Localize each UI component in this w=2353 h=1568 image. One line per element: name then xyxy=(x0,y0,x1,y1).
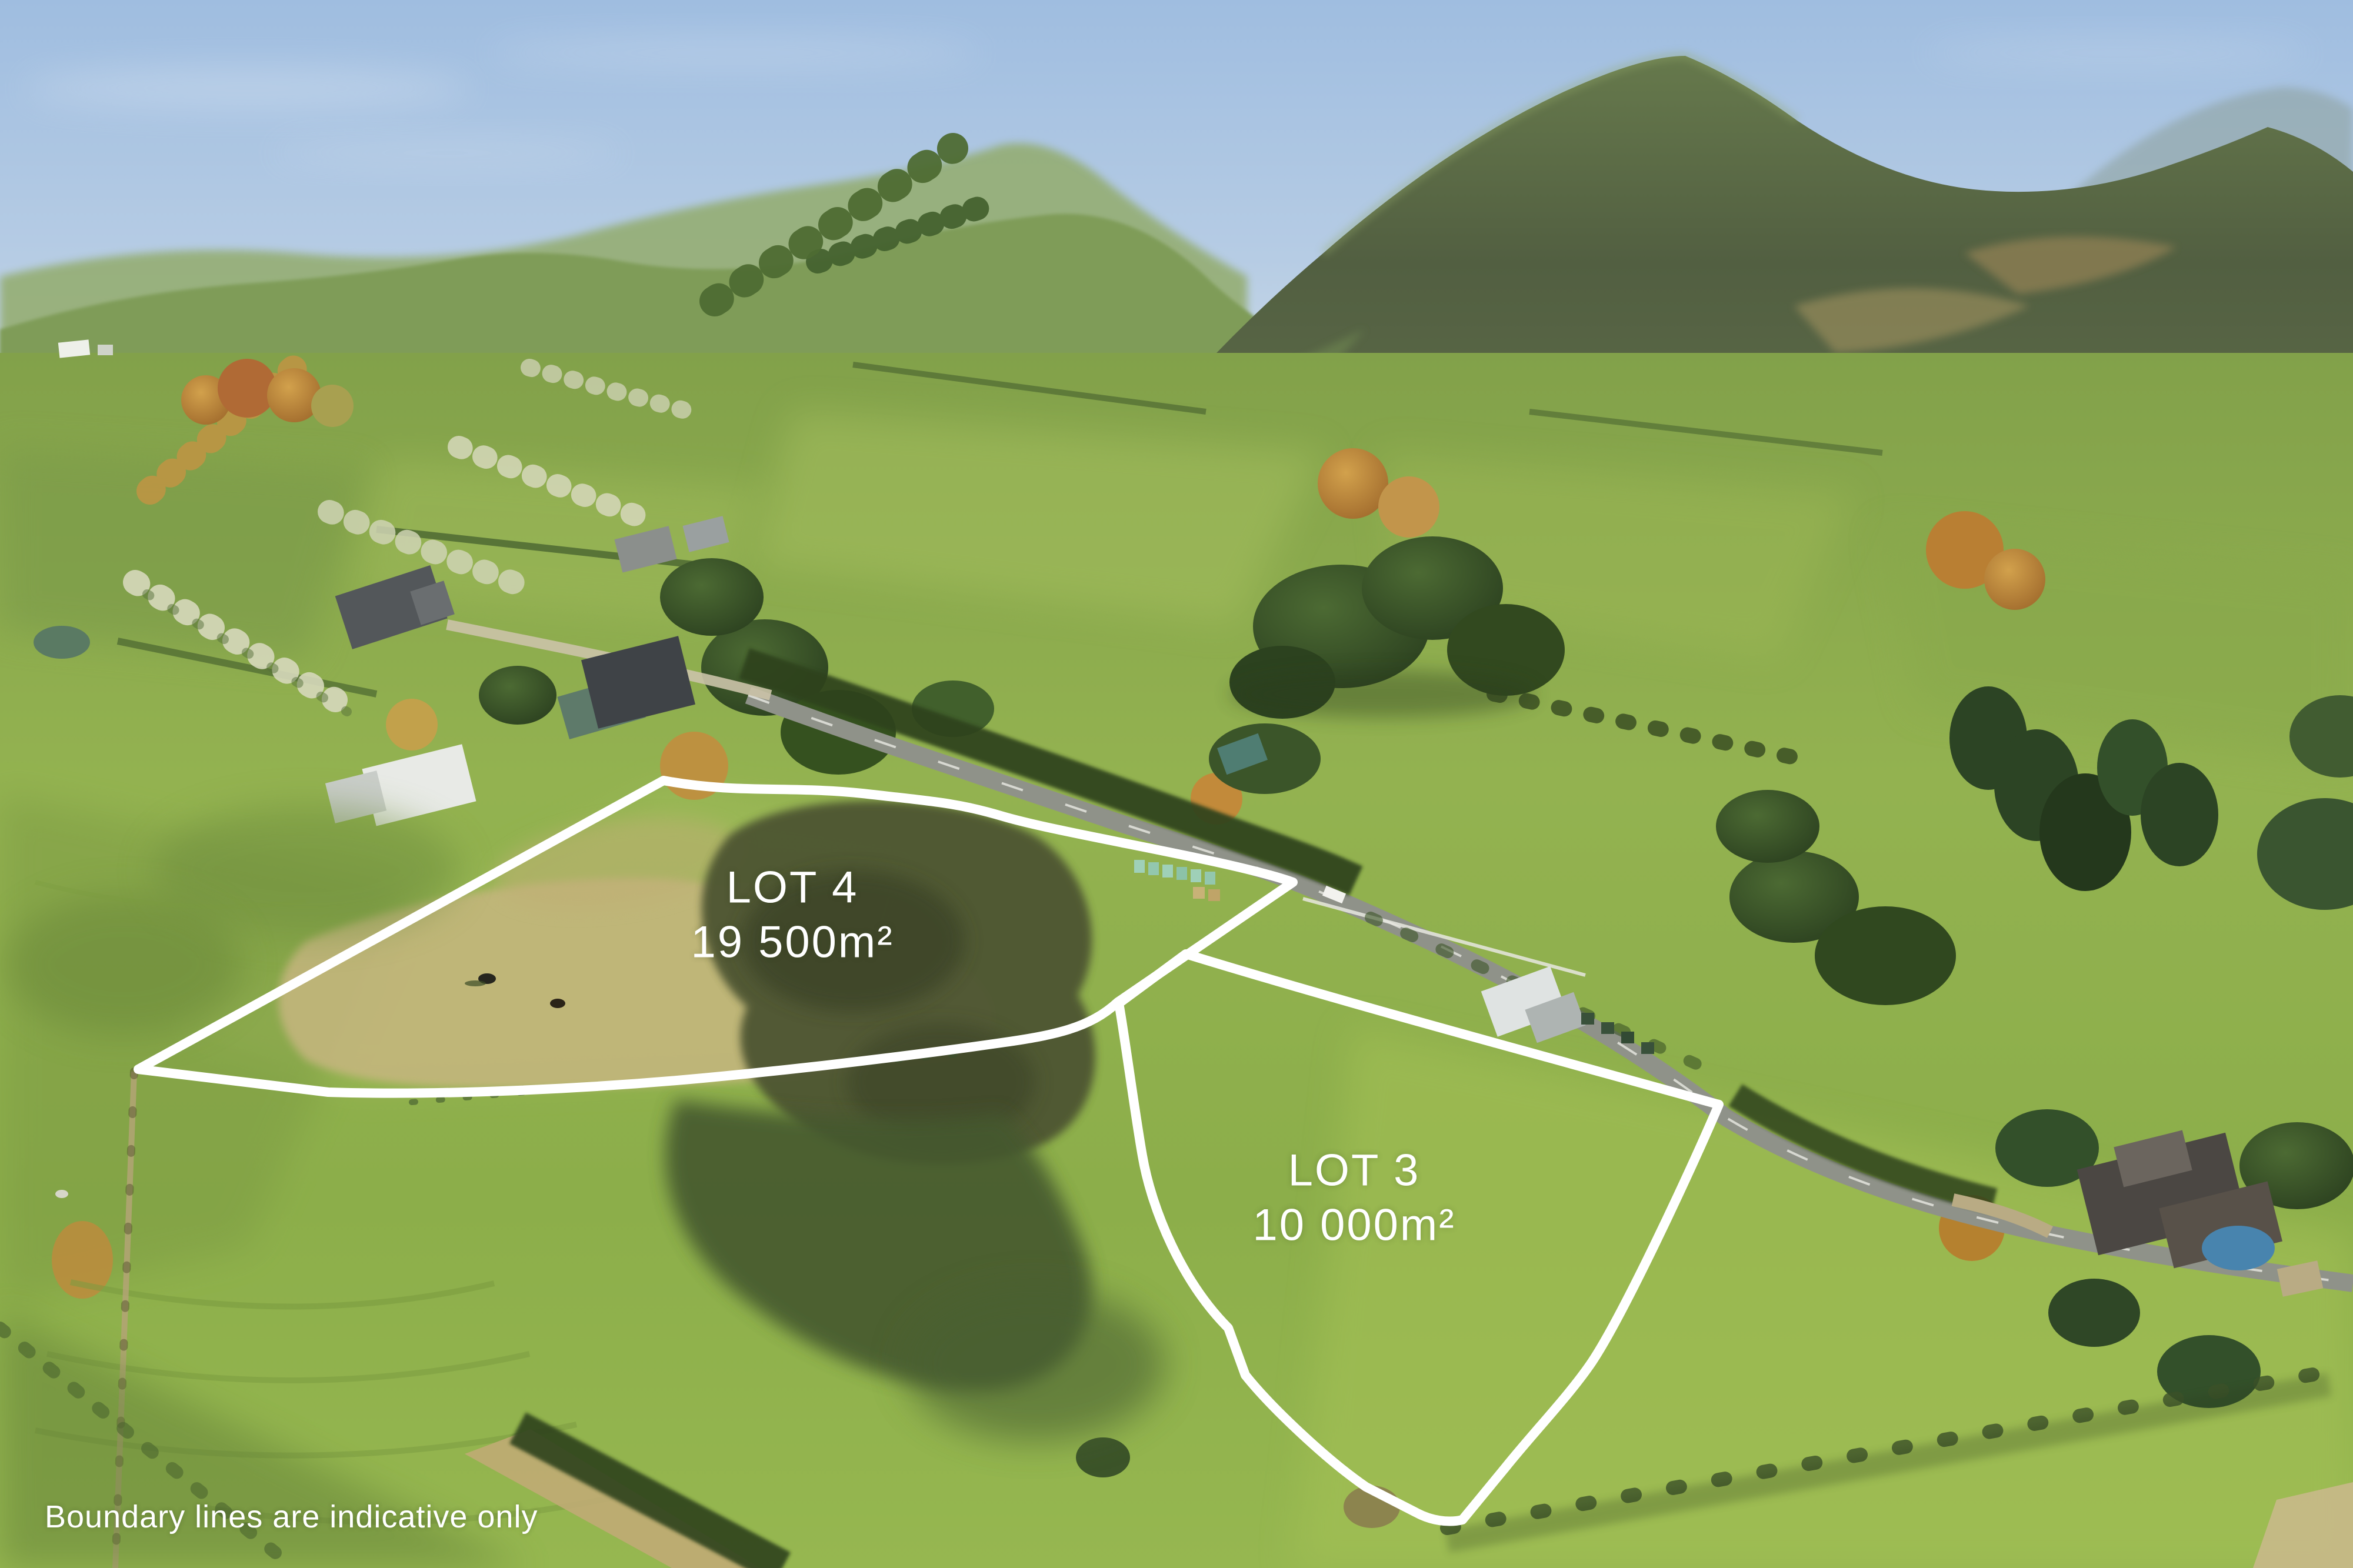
lot4-name: LOT 4 xyxy=(691,860,894,915)
cloud xyxy=(488,38,982,68)
lot3-name: LOT 3 xyxy=(1252,1143,1455,1198)
lot3-label: LOT 3 10 000m² xyxy=(1252,1143,1455,1252)
cloud xyxy=(24,68,471,108)
cloud xyxy=(271,140,624,166)
landscape-scene xyxy=(0,0,2353,1568)
distant-shed xyxy=(98,345,113,355)
lot3-area: 10 000m² xyxy=(1252,1198,1455,1253)
pool-tarp xyxy=(2202,1226,2275,1270)
pond xyxy=(34,626,90,659)
cloud xyxy=(1924,39,2312,67)
lot4-label: LOT 4 19 500m² xyxy=(691,860,894,969)
cow-shadow xyxy=(465,980,486,986)
distant-shed xyxy=(58,339,90,358)
sheep xyxy=(55,1190,68,1198)
aerial-photo: LOT 4 19 500m² LOT 3 10 000m² Boundary l… xyxy=(0,0,2353,1568)
cow xyxy=(550,999,565,1008)
boundary-disclaimer: Boundary lines are indicative only xyxy=(45,1499,538,1535)
lot4-area: 19 500m² xyxy=(691,915,894,970)
